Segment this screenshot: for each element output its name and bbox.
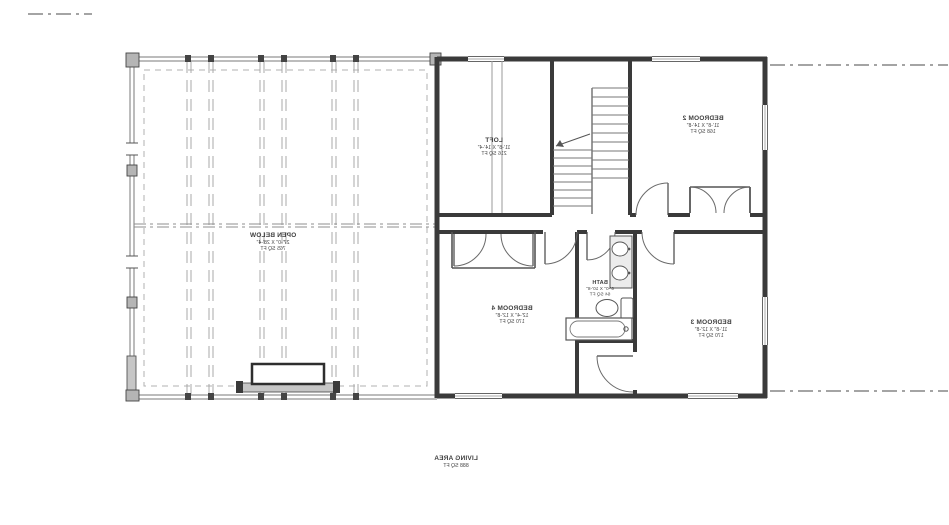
room-label-bedroom-2: BEDROOM 2 11'-8" X 14'-8" 168 SQ FT	[682, 115, 723, 135]
closet-double-door-arc	[690, 187, 750, 213]
svg-text:6'-0" X 10'-8": 6'-0" X 10'-8"	[586, 286, 614, 291]
door-arc	[545, 232, 577, 264]
hearth-block	[236, 364, 340, 393]
room-label-bedroom-3: BEDROOM 3 11'-8" X 12'-8" 170 SQ FT	[690, 319, 731, 339]
room-label-bedroom-4: BEDROOM 4 12'-4" X 12'-8" 170 SQ FT	[491, 305, 532, 325]
svg-text:216 SQ FT: 216 SQ FT	[481, 151, 506, 157]
svg-text:765 SQ FT: 765 SQ FT	[260, 246, 285, 252]
left-section-thin-walls	[130, 57, 437, 399]
extension-lines	[28, 14, 948, 391]
room-label-open-below: OPEN BELOW 27'-0" X 28'-4" 765 SQ FT	[249, 232, 296, 252]
interior-walls	[437, 59, 767, 396]
svg-text:BEDROOM 4: BEDROOM 4	[491, 305, 532, 312]
midline-dashdot	[134, 224, 436, 227]
left-wall-windows	[126, 143, 138, 396]
door-arc	[597, 356, 633, 392]
exterior-walls	[437, 57, 767, 398]
hall-closet-walls	[690, 187, 750, 213]
door-arc	[636, 183, 668, 215]
bathtub	[566, 318, 632, 340]
toilet	[596, 298, 633, 319]
floor-plan-svg: OPEN BELOW 27'-0" X 28'-4" 765 SQ FT LOF…	[0, 0, 949, 525]
svg-text:64 SQ FT: 64 SQ FT	[590, 292, 611, 297]
svg-text:170 SQ FT: 170 SQ FT	[499, 319, 524, 325]
svg-text:170 SQ FT: 170 SQ FT	[698, 333, 723, 339]
living-area-label: LIVING AREA 888 SQ FT	[434, 455, 478, 469]
svg-text:LOFT: LOFT	[485, 137, 503, 144]
vanity-sinks	[610, 236, 632, 288]
svg-text:168 SQ FT: 168 SQ FT	[690, 129, 715, 135]
svg-text:LIVING AREA: LIVING AREA	[434, 455, 478, 462]
floor-plan-page: OPEN BELOW 27'-0" X 28'-4" 765 SQ FT LOF…	[0, 0, 949, 525]
room-label-loft: LOFT 11'-8" X 14'-4" 216 SQ FT	[478, 137, 511, 157]
svg-text:OPEN BELOW: OPEN BELOW	[249, 232, 296, 239]
stairs	[553, 88, 629, 214]
beam-lines	[187, 61, 358, 395]
closet-double-door-arc	[454, 234, 533, 266]
bedroom4-closet-walls	[452, 232, 535, 268]
svg-text:888 SQ FT: 888 SQ FT	[442, 463, 468, 469]
svg-text:BEDROOM 3: BEDROOM 3	[690, 319, 731, 326]
door-arc	[642, 232, 674, 264]
svg-text:BEDROOM 2: BEDROOM 2	[682, 115, 723, 122]
